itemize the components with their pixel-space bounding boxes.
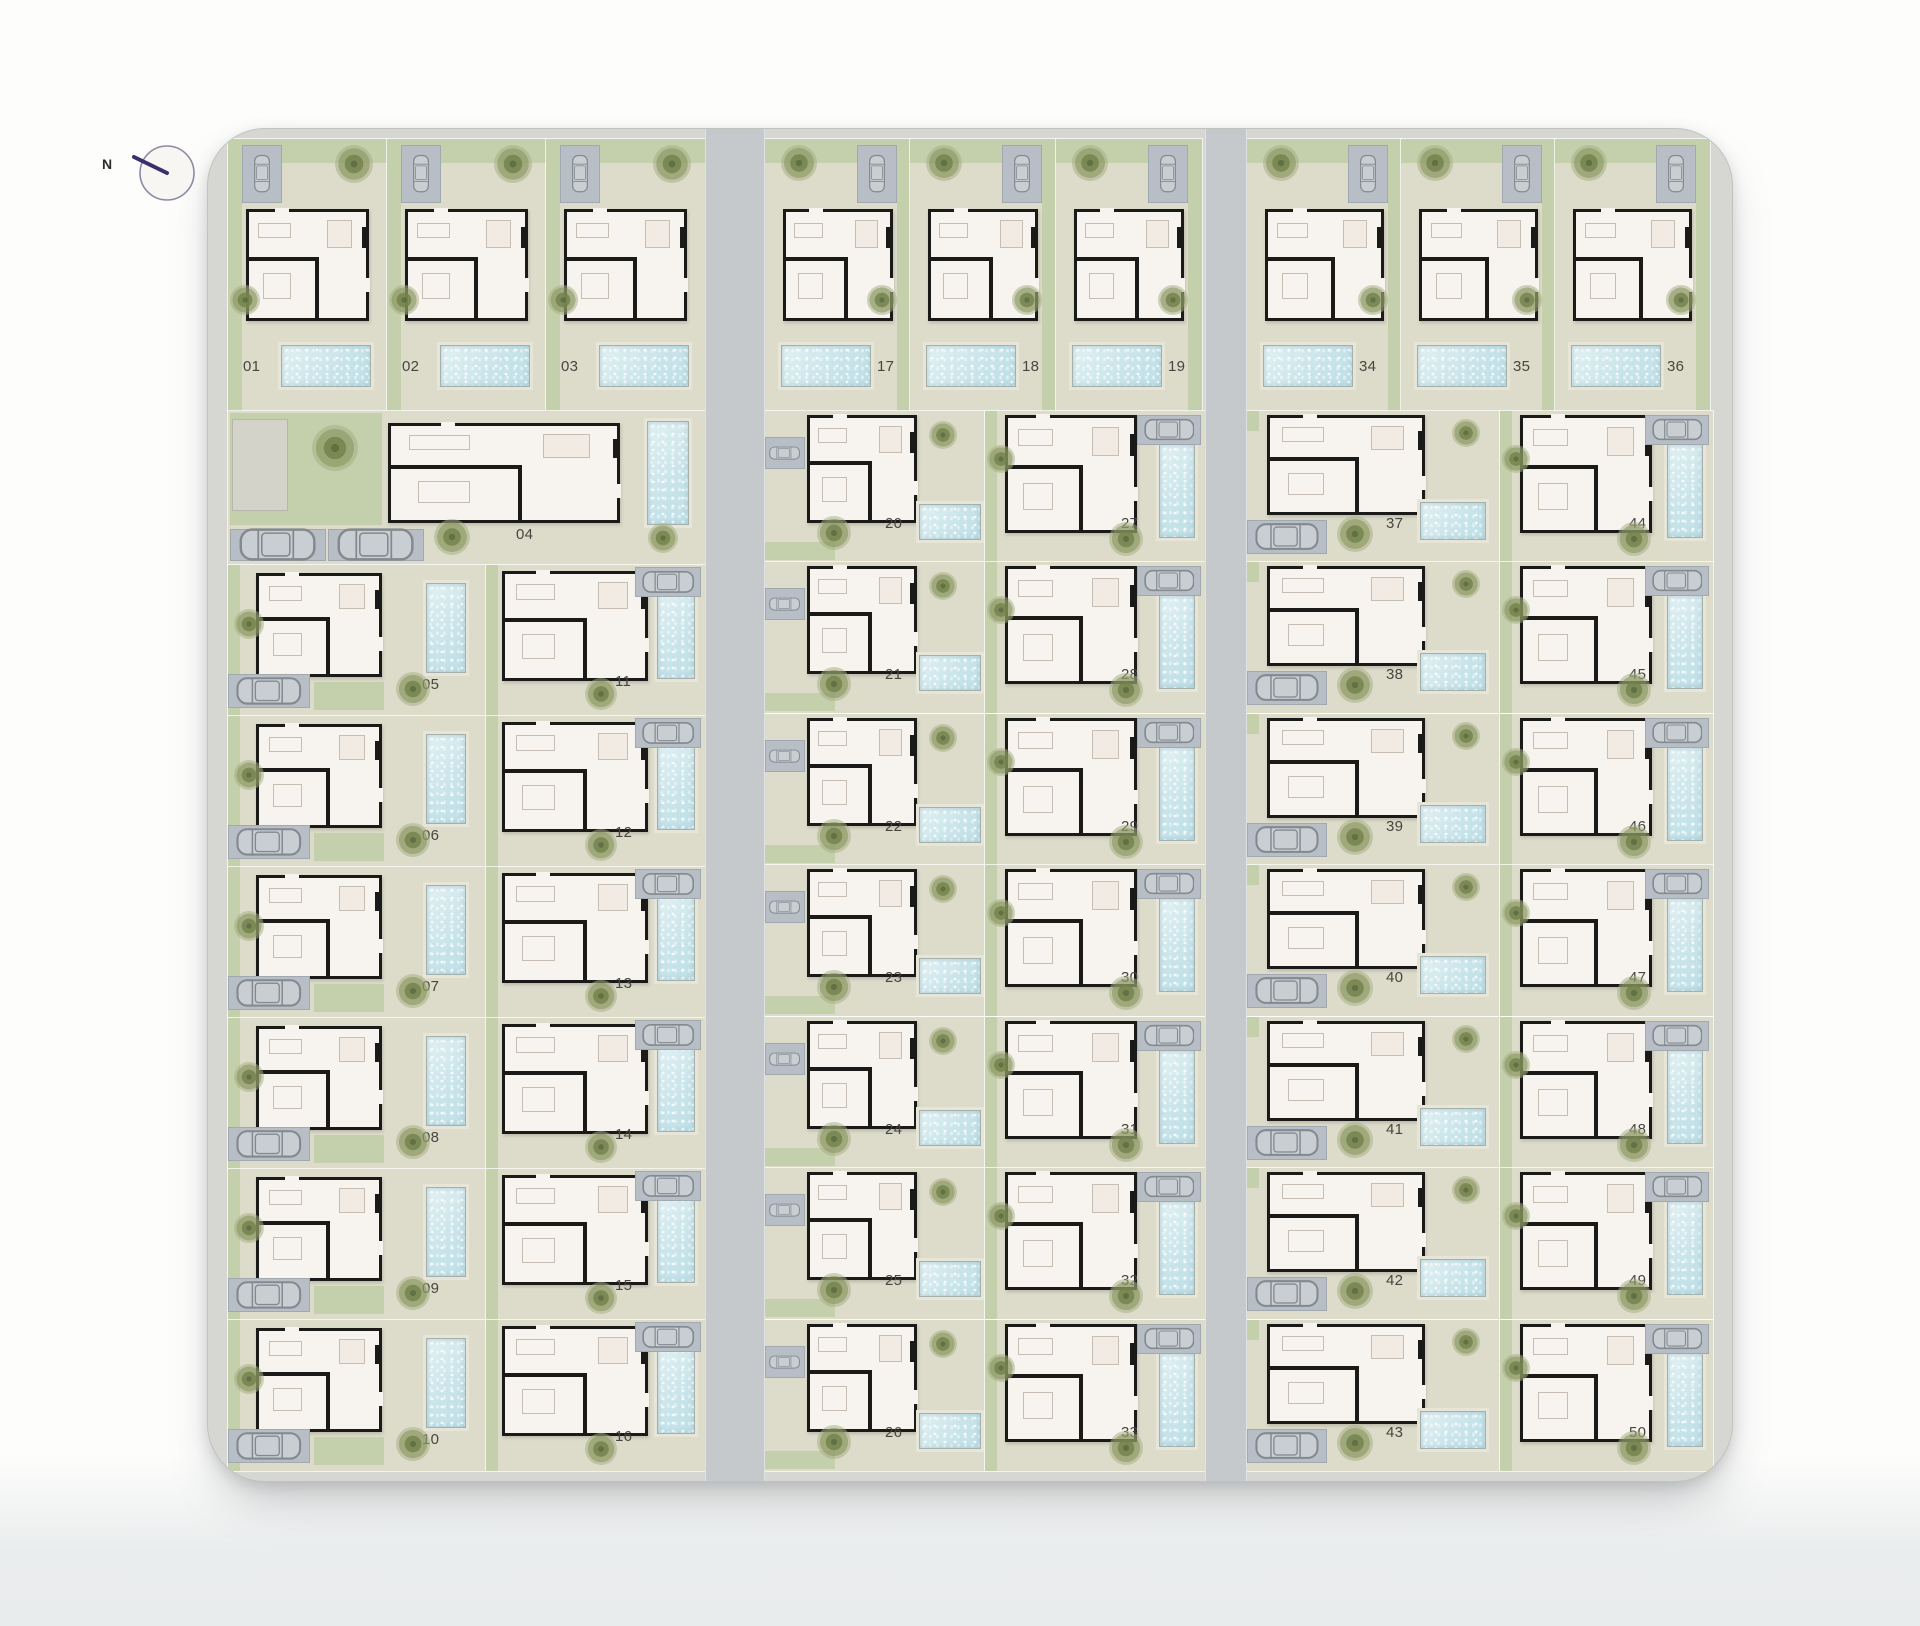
furniture-outline — [269, 1039, 302, 1054]
wall-line — [408, 257, 474, 261]
wall-line — [1031, 227, 1035, 248]
road — [1205, 129, 1247, 1481]
wall-line — [913, 1087, 918, 1101]
driveway — [228, 825, 310, 859]
wall-line — [375, 892, 379, 912]
garden-patch — [1247, 1168, 1259, 1188]
furniture-outline — [1371, 1335, 1403, 1360]
plot-03: 03 — [546, 139, 705, 411]
furniture-outline — [339, 886, 365, 912]
wall-line — [536, 721, 550, 726]
plot-01: 01 — [228, 139, 387, 411]
plot-21: 21 — [765, 562, 985, 713]
furniture-outline — [516, 1188, 554, 1204]
wall-line — [1355, 911, 1359, 966]
furniture-outline — [879, 426, 902, 452]
pool — [440, 345, 530, 387]
pool — [426, 1187, 466, 1277]
wall-line — [1421, 1385, 1426, 1399]
furniture-outline — [1371, 577, 1403, 602]
furniture-outline — [516, 735, 554, 751]
tree-icon — [1452, 419, 1480, 447]
driveway — [857, 145, 897, 203]
wall-line — [1594, 919, 1598, 984]
plot-34: 34 — [1247, 139, 1402, 411]
tree-icon — [1263, 145, 1299, 181]
pool — [426, 1338, 466, 1428]
wall-line — [583, 1071, 587, 1131]
pool — [657, 742, 695, 830]
wall-line — [1133, 1093, 1138, 1107]
pool — [1159, 444, 1195, 538]
wall-line — [567, 257, 633, 261]
plot-25: 25 — [765, 1168, 985, 1319]
garden-patch — [314, 984, 384, 1012]
furniture-outline — [1282, 1336, 1324, 1350]
plot-06: 06 — [228, 716, 486, 867]
plot-15: 15 — [486, 1169, 705, 1320]
pool — [1420, 1259, 1486, 1297]
wall-line — [1036, 717, 1050, 722]
tree-icon — [929, 572, 957, 600]
furniture-outline — [1288, 1079, 1323, 1102]
car-icon — [253, 155, 270, 193]
driveway — [1247, 974, 1327, 1008]
car-icon — [1013, 155, 1030, 193]
plot-number-label: 13 — [615, 976, 632, 991]
tree-icon — [1617, 1431, 1651, 1465]
wall-line — [1177, 227, 1181, 248]
furniture-outline — [1533, 1186, 1568, 1203]
wall-line — [1355, 1214, 1359, 1269]
furniture-outline — [1533, 883, 1568, 900]
wall-line — [810, 1370, 868, 1374]
wall-line — [1079, 919, 1083, 984]
car-icon — [642, 721, 694, 745]
tree-icon — [1512, 285, 1542, 315]
wall-line — [1270, 608, 1355, 612]
wall-line — [524, 278, 529, 292]
plot-26: 26 — [765, 1320, 985, 1471]
tree-icon — [1072, 145, 1108, 181]
house-footprint — [1005, 1172, 1137, 1290]
plot-number-label: 16 — [615, 1429, 632, 1444]
garden-patch — [387, 139, 401, 411]
tree-icon — [817, 1122, 851, 1156]
garden-patch — [1388, 139, 1402, 411]
driveway — [635, 718, 701, 748]
car-icon — [1652, 872, 1703, 895]
wall-line — [1523, 1071, 1594, 1075]
wall-line — [505, 618, 583, 622]
furniture-outline — [1282, 427, 1324, 441]
tree-icon — [926, 145, 962, 181]
house-footprint — [502, 571, 648, 681]
plot-number-label: 20 — [885, 516, 902, 531]
tree-icon — [987, 1051, 1015, 1079]
wall-line — [1270, 1366, 1355, 1370]
plot-number-label: 42 — [1386, 1273, 1403, 1288]
pool — [1420, 805, 1486, 843]
furniture-outline — [269, 1341, 302, 1356]
plot-number-label: 37 — [1386, 516, 1403, 531]
tree-icon — [494, 145, 532, 183]
wall-line — [868, 764, 872, 823]
driveway — [1247, 1126, 1327, 1160]
plot-19: 19 — [1056, 139, 1202, 411]
wall-line — [1418, 1037, 1422, 1056]
tree-icon — [1109, 976, 1143, 1010]
car-icon — [769, 446, 800, 460]
furniture-outline — [269, 737, 302, 752]
car-icon — [1159, 155, 1176, 193]
wall-line — [1531, 227, 1535, 248]
wall-line — [1355, 1366, 1359, 1421]
furniture-outline — [1371, 1183, 1403, 1208]
wall-line — [989, 257, 993, 318]
house-footprint — [405, 209, 528, 321]
house-footprint — [807, 1021, 917, 1129]
car-icon — [236, 1129, 302, 1159]
wall-line — [1036, 1171, 1050, 1176]
wall-line — [833, 868, 847, 873]
driveway — [635, 567, 701, 597]
plot-number-label: 03 — [561, 359, 578, 374]
plot-number-label: 26 — [885, 1425, 902, 1440]
wall-line — [434, 208, 448, 213]
driveway — [635, 1020, 701, 1050]
wall-line — [378, 1392, 383, 1406]
furniture-outline — [486, 220, 511, 247]
wall-line — [1685, 227, 1689, 248]
house-footprint — [246, 209, 369, 321]
wall-line — [1421, 1082, 1426, 1096]
wall-line — [536, 1325, 550, 1330]
pool — [1571, 345, 1661, 387]
furniture-outline — [1018, 429, 1053, 446]
furniture-outline — [1607, 1033, 1634, 1062]
driveway — [1645, 566, 1709, 596]
furniture-outline — [818, 428, 847, 443]
furniture-outline — [339, 1037, 365, 1063]
pool — [426, 885, 466, 975]
furniture-outline — [1018, 883, 1053, 900]
plot-14: 14 — [486, 1018, 705, 1169]
plot-number-label: 34 — [1359, 359, 1376, 374]
wall-line — [868, 915, 872, 974]
wall-line — [1303, 565, 1317, 570]
wall-line — [285, 723, 299, 728]
plot-45: 45 — [1500, 562, 1713, 713]
tree-icon — [929, 1027, 957, 1055]
wall-line — [1421, 779, 1426, 793]
wall-line — [1008, 465, 1079, 469]
car-icon — [1652, 1024, 1703, 1047]
garden-patch — [314, 1437, 384, 1465]
plot-02: 02 — [387, 139, 546, 411]
wall-line — [474, 257, 478, 318]
wall-line — [1303, 717, 1317, 722]
furniture-outline — [1371, 1032, 1403, 1057]
garden-patch — [1500, 865, 1512, 1016]
wall-line — [1422, 257, 1485, 261]
furniture-outline — [1282, 1184, 1324, 1198]
car-icon — [769, 1355, 800, 1369]
garden-patch — [1500, 1320, 1512, 1471]
pool — [657, 591, 695, 679]
wall-line — [1523, 919, 1594, 923]
plot-07: 07 — [228, 867, 486, 1018]
driveway — [1502, 145, 1542, 203]
pool — [657, 893, 695, 981]
plot-18: 18 — [910, 139, 1056, 411]
tree-icon — [929, 724, 957, 752]
tree-icon — [817, 516, 851, 550]
car-icon — [236, 978, 302, 1008]
wall-line — [1594, 1222, 1598, 1287]
plot-number-label: 11 — [615, 674, 631, 689]
plot-35: 35 — [1401, 139, 1556, 411]
wall-line — [910, 1189, 914, 1209]
tree-icon — [234, 1062, 264, 1092]
wall-line — [1421, 476, 1426, 490]
wall-line — [1551, 1171, 1565, 1176]
driveway — [1247, 1429, 1327, 1463]
tree-icon — [234, 1213, 264, 1243]
driveway — [635, 1171, 701, 1201]
pool — [1420, 502, 1486, 540]
pool — [919, 807, 981, 843]
driveway — [635, 869, 701, 899]
wall-line — [1551, 1020, 1565, 1025]
furniture-outline — [798, 273, 823, 298]
tree-icon — [1337, 1425, 1373, 1461]
site-plan: 0102030405060708091011121314151617181920… — [207, 128, 1733, 1482]
tree-icon — [1666, 285, 1696, 315]
house-footprint — [1005, 869, 1137, 987]
car-icon — [1144, 872, 1195, 895]
plot-number-label: 04 — [516, 527, 533, 542]
pool — [1667, 444, 1703, 538]
furniture-outline — [1538, 1392, 1568, 1419]
wall-line — [1648, 1244, 1653, 1258]
furniture-outline — [1607, 578, 1634, 607]
plot-number-label: 22 — [885, 819, 902, 834]
furniture-outline — [273, 935, 301, 959]
wall-line — [536, 570, 550, 575]
wall-line — [910, 432, 914, 452]
furniture-outline — [1023, 634, 1053, 661]
wall-line — [505, 1222, 583, 1226]
tree-icon — [1452, 1025, 1480, 1053]
plot-05: 05 — [228, 565, 486, 716]
plot-28: 28 — [985, 562, 1205, 713]
tree-icon — [817, 819, 851, 853]
plot-24: 24 — [765, 1017, 985, 1168]
car-icon — [1513, 155, 1530, 193]
wall-line — [1594, 1374, 1598, 1439]
wall-line — [326, 1221, 330, 1278]
house-footprint — [807, 869, 917, 977]
car-icon — [769, 749, 800, 763]
garden-patch — [486, 716, 498, 867]
tree-icon — [1358, 285, 1388, 315]
pool — [781, 345, 871, 387]
wall-line — [536, 872, 550, 877]
pool — [926, 345, 1016, 387]
plot-number-label: 23 — [885, 970, 902, 985]
plot-32: 32 — [985, 1168, 1205, 1319]
furniture-outline — [879, 880, 902, 906]
house-footprint — [807, 1324, 917, 1432]
wall-line — [644, 1091, 649, 1105]
furniture-outline — [1607, 1336, 1634, 1365]
house-footprint — [1005, 718, 1137, 836]
car-icon — [769, 900, 800, 914]
wall-line — [1421, 1233, 1426, 1247]
wall-line — [1551, 717, 1565, 722]
pool — [919, 1413, 981, 1449]
tree-icon — [1337, 667, 1373, 703]
wall-line — [1130, 585, 1134, 607]
furniture-outline — [576, 223, 608, 239]
pool — [1263, 345, 1353, 387]
driveway — [1645, 415, 1709, 445]
wall-line — [810, 612, 868, 616]
furniture-outline — [1651, 220, 1676, 247]
wall-line — [326, 617, 330, 674]
wall-line — [378, 1241, 383, 1255]
garden-patch — [897, 139, 911, 411]
garden-patch — [486, 1169, 498, 1320]
tree-icon — [817, 1425, 851, 1459]
garden-patch — [1042, 139, 1056, 411]
furniture-outline — [1533, 732, 1568, 749]
house-footprint — [1267, 1324, 1425, 1424]
driveway — [1137, 566, 1201, 596]
garden-patch — [486, 1320, 498, 1471]
car-icon — [642, 570, 694, 594]
tree-icon — [1452, 1176, 1480, 1204]
wall-line — [1008, 1071, 1079, 1075]
house-footprint — [807, 1172, 917, 1280]
car-icon — [1255, 1431, 1319, 1460]
plot-13: 13 — [486, 867, 705, 1018]
furniture-outline — [1018, 732, 1053, 749]
wall-line — [1331, 257, 1335, 318]
furniture-outline — [1538, 786, 1568, 813]
tree-icon — [1502, 899, 1530, 927]
tree-icon — [1452, 722, 1480, 750]
pool — [919, 1261, 981, 1297]
plot-10: 10 — [228, 1320, 486, 1471]
garden-patch — [1247, 562, 1259, 582]
driveway — [1148, 145, 1188, 203]
wall-line — [1377, 227, 1381, 248]
furniture-outline — [598, 1186, 628, 1213]
tree-icon — [1337, 970, 1373, 1006]
tree-icon — [585, 829, 617, 861]
plot-number-label: 01 — [243, 359, 260, 374]
driveway — [228, 674, 310, 708]
driveway — [1247, 823, 1327, 857]
wall-line — [259, 1372, 326, 1376]
car-icon — [642, 1023, 694, 1047]
plot-number-label: 25 — [885, 1273, 902, 1288]
wall-line — [1303, 414, 1317, 419]
plot-number-label: 39 — [1386, 819, 1403, 834]
driveway — [1645, 1324, 1709, 1354]
furniture-outline — [598, 884, 628, 911]
wall-line — [1130, 888, 1134, 910]
tree-icon — [1158, 285, 1188, 315]
furniture-outline — [1023, 1240, 1053, 1267]
driveway — [1645, 1021, 1709, 1051]
house-footprint — [256, 1026, 382, 1130]
furniture-outline — [598, 1035, 628, 1062]
furniture-outline — [1538, 634, 1568, 661]
furniture-outline — [1436, 273, 1463, 298]
wall-line — [378, 1090, 383, 1104]
house-footprint — [564, 209, 687, 321]
furniture-outline — [1023, 786, 1053, 813]
furniture-outline — [273, 633, 301, 657]
house-footprint — [807, 415, 917, 523]
car-icon — [642, 1325, 694, 1349]
driveway — [1002, 145, 1042, 203]
wall-line — [1421, 627, 1426, 641]
tree-icon — [1617, 673, 1651, 707]
furniture-outline — [818, 579, 847, 594]
pool — [1159, 595, 1195, 689]
garden-patch — [1542, 139, 1556, 411]
wall-line — [913, 1390, 918, 1404]
garden-shed — [232, 419, 288, 511]
wall-line — [810, 764, 868, 768]
furniture-outline — [258, 223, 290, 239]
wall-line — [1303, 1171, 1317, 1176]
wall-line — [583, 1373, 587, 1433]
wall-line — [644, 1393, 649, 1407]
furniture-outline — [939, 223, 968, 239]
wall-line — [810, 1067, 868, 1071]
driveway — [1247, 671, 1327, 705]
wall-line — [593, 208, 607, 213]
pool — [1159, 1353, 1195, 1447]
pool — [1667, 1353, 1703, 1447]
wall-line — [259, 1070, 326, 1074]
tree-icon — [929, 421, 957, 449]
pool — [1159, 747, 1195, 841]
tree-icon — [817, 1273, 851, 1307]
wall-line — [1036, 414, 1050, 419]
furniture-outline — [522, 936, 555, 961]
furniture-outline — [1089, 273, 1114, 298]
house-footprint — [502, 1326, 648, 1436]
tree-icon — [1012, 285, 1042, 315]
wall-line — [1303, 868, 1317, 873]
house-footprint — [502, 873, 648, 983]
wall-line — [1133, 790, 1138, 804]
car-icon — [1652, 418, 1703, 441]
tree-icon — [817, 970, 851, 1004]
wall-line — [1079, 1071, 1083, 1136]
garden-patch — [1247, 1320, 1259, 1340]
garden-patch — [985, 1168, 997, 1319]
plot-20: 20 — [765, 411, 985, 562]
tree-icon — [1617, 1128, 1651, 1162]
furniture-outline — [1607, 427, 1634, 456]
